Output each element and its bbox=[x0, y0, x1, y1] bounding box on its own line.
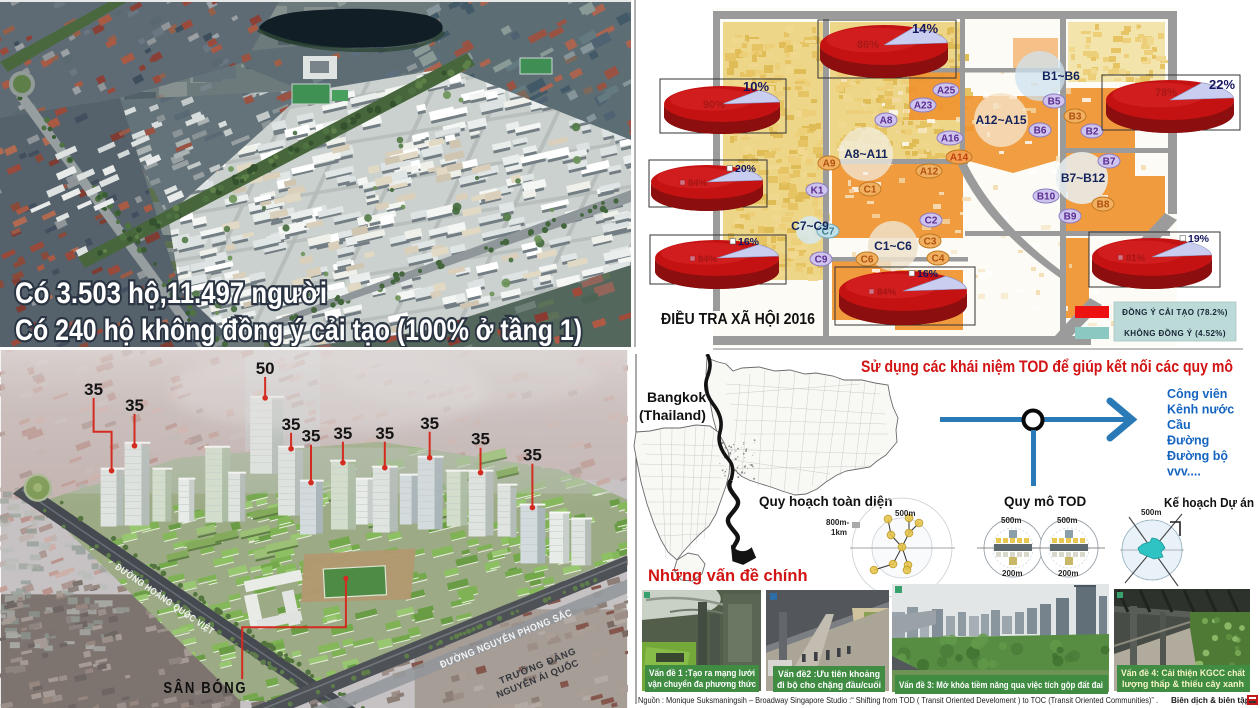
svg-text:84%: 84% bbox=[698, 254, 718, 265]
svg-text:C7~C9: C7~C9 bbox=[791, 219, 829, 233]
svg-text:B8: B8 bbox=[1097, 200, 1110, 211]
svg-text:84%: 84% bbox=[688, 178, 708, 189]
svg-text:C6: C6 bbox=[861, 255, 874, 266]
svg-text:10%: 10% bbox=[743, 79, 769, 94]
svg-text:22%: 22% bbox=[1209, 77, 1235, 92]
svg-text:B2: B2 bbox=[1086, 127, 1099, 138]
svg-text:B3: B3 bbox=[1069, 112, 1082, 123]
svg-text:ĐỒNG Ý CẢI TẠO (78.2%): ĐỒNG Ý CẢI TẠO (78.2%) bbox=[1122, 307, 1228, 317]
svg-text:A23: A23 bbox=[914, 101, 933, 112]
svg-text:19%: 19% bbox=[1188, 233, 1210, 245]
svg-text:A14: A14 bbox=[950, 153, 969, 164]
svg-text:Có 240 hộ không đồng ý cải tạo: Có 240 hộ không đồng ý cải tạo (100% ở t… bbox=[15, 314, 582, 347]
svg-text:C3: C3 bbox=[924, 237, 937, 248]
svg-text:20%: 20% bbox=[735, 163, 757, 175]
svg-text:ĐIỀU TRA XÃ HỘI 2016: ĐIỀU TRA XÃ HỘI 2016 bbox=[661, 310, 815, 328]
svg-text:A8~A11: A8~A11 bbox=[844, 147, 888, 161]
svg-text:90%: 90% bbox=[703, 99, 725, 111]
svg-text:B6: B6 bbox=[1034, 126, 1047, 137]
svg-text:C9: C9 bbox=[815, 255, 828, 266]
svg-text:16%: 16% bbox=[738, 236, 760, 248]
svg-text:K1: K1 bbox=[811, 186, 824, 197]
svg-text:81%: 81% bbox=[1126, 253, 1146, 264]
svg-text:C4: C4 bbox=[932, 254, 945, 265]
svg-text:A12: A12 bbox=[920, 167, 939, 178]
svg-text:KHÔNG ĐỒNG Ý (4.52%): KHÔNG ĐỒNG Ý (4.52%) bbox=[1124, 328, 1226, 338]
svg-text:78%: 78% bbox=[1155, 87, 1177, 99]
svg-text:A8: A8 bbox=[880, 116, 893, 127]
svg-text:B1~B6: B1~B6 bbox=[1042, 69, 1080, 83]
svg-text:B10: B10 bbox=[1037, 192, 1056, 203]
svg-text:B5: B5 bbox=[1048, 97, 1061, 108]
svg-text:A16: A16 bbox=[941, 134, 960, 145]
svg-text:B7: B7 bbox=[1103, 157, 1116, 168]
svg-text:B7~B12: B7~B12 bbox=[1061, 171, 1106, 185]
svg-text:A9: A9 bbox=[823, 159, 836, 170]
svg-text:Có 3.503 hộ,11.497 người: Có 3.503 hộ,11.497 người bbox=[15, 277, 327, 310]
svg-text:14%: 14% bbox=[912, 21, 938, 36]
svg-text:A25: A25 bbox=[937, 86, 956, 97]
svg-text:C1~C6: C1~C6 bbox=[874, 239, 912, 253]
svg-text:A12~A15: A12~A15 bbox=[975, 113, 1026, 127]
svg-text:86%: 86% bbox=[857, 39, 879, 51]
svg-text:16%: 16% bbox=[917, 268, 939, 280]
svg-text:B9: B9 bbox=[1064, 212, 1077, 223]
svg-text:C1: C1 bbox=[864, 185, 877, 196]
svg-text:84%: 84% bbox=[877, 287, 897, 298]
svg-text:C2: C2 bbox=[925, 216, 938, 227]
